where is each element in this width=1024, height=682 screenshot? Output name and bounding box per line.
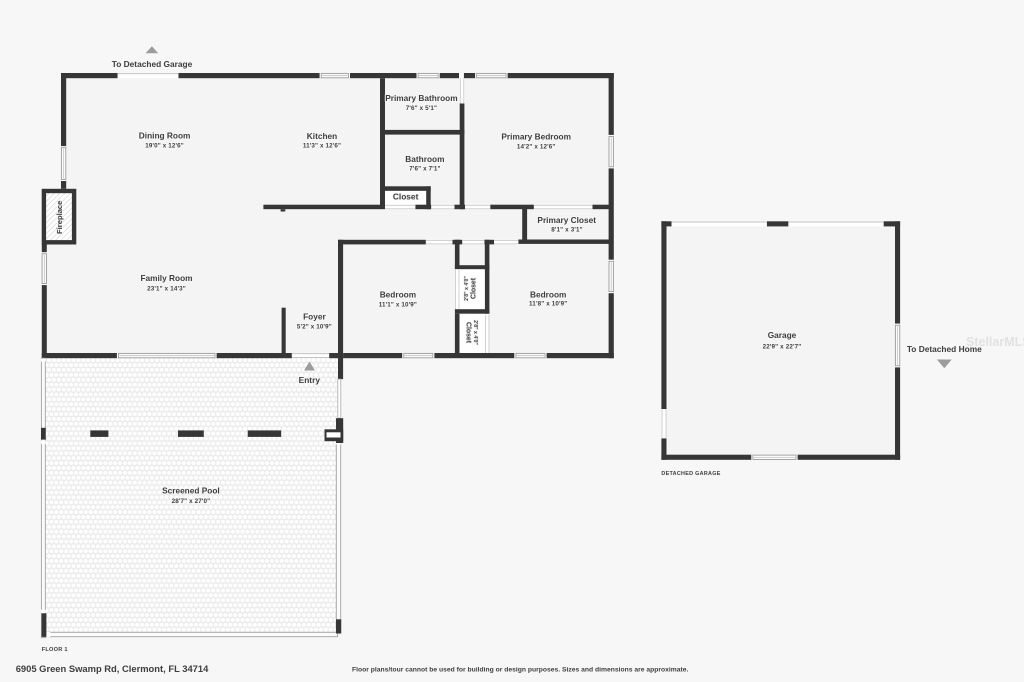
- svg-text:Bedroom: Bedroom: [530, 290, 566, 300]
- svg-text:StellarMLS: StellarMLS: [966, 335, 1024, 349]
- svg-text:Closet: Closet: [470, 277, 477, 299]
- svg-text:6905 Green Swamp Rd, Clermont,: 6905 Green Swamp Rd, Clermont, FL 34714: [16, 663, 209, 674]
- svg-text:5'2" x 10'9": 5'2" x 10'9": [297, 324, 332, 331]
- svg-text:28'7" x 27'0": 28'7" x 27'0": [172, 498, 211, 505]
- svg-text:7'6" x 5'1": 7'6" x 5'1": [406, 105, 437, 112]
- svg-text:23'1" x 14'3": 23'1" x 14'3": [147, 286, 186, 293]
- svg-text:To Detached Garage: To Detached Garage: [112, 59, 193, 69]
- svg-text:11'1" x 10'9": 11'1" x 10'9": [379, 302, 417, 309]
- svg-text:Dining Room: Dining Room: [139, 131, 191, 141]
- svg-text:Screened Pool: Screened Pool: [162, 486, 220, 496]
- svg-text:Fireplace: Fireplace: [55, 201, 64, 234]
- svg-text:2'8" x 4'0": 2'8" x 4'0": [472, 320, 478, 345]
- svg-text:11'8" x 10'9": 11'8" x 10'9": [529, 301, 567, 308]
- svg-text:7'6" x 7'1": 7'6" x 7'1": [409, 166, 440, 173]
- svg-text:Bedroom: Bedroom: [380, 290, 416, 300]
- svg-text:Bathroom: Bathroom: [405, 154, 444, 164]
- svg-text:Closet: Closet: [393, 192, 419, 202]
- svg-text:Primary Bedroom: Primary Bedroom: [501, 132, 571, 142]
- svg-text:Primary Closet: Primary Closet: [537, 215, 596, 225]
- svg-text:Floor plans/tour cannot be use: Floor plans/tour cannot be used for buil…: [352, 667, 689, 674]
- svg-text:Foyer: Foyer: [303, 312, 326, 322]
- svg-text:8'1" x 3'1": 8'1" x 3'1": [551, 227, 582, 234]
- svg-text:2'8" x 4'0": 2'8" x 4'0": [464, 276, 470, 301]
- svg-text:Primary Bathroom: Primary Bathroom: [385, 93, 457, 103]
- svg-text:Kitchen: Kitchen: [307, 131, 337, 141]
- svg-text:Garage: Garage: [768, 330, 797, 340]
- svg-text:DETACHED GARAGE: DETACHED GARAGE: [661, 471, 720, 477]
- svg-text:14'2" x 12'6": 14'2" x 12'6": [517, 144, 556, 151]
- svg-text:19'0" x 12'6": 19'0" x 12'6": [145, 143, 184, 150]
- svg-text:Family Room: Family Room: [140, 273, 192, 283]
- svg-text:Entry: Entry: [299, 375, 321, 385]
- svg-text:11'3" x 12'6": 11'3" x 12'6": [303, 143, 341, 150]
- svg-text:Closet: Closet: [464, 322, 471, 344]
- svg-text:22'9" x 22'7": 22'9" x 22'7": [763, 344, 802, 351]
- svg-text:FLOOR 1: FLOOR 1: [42, 647, 68, 653]
